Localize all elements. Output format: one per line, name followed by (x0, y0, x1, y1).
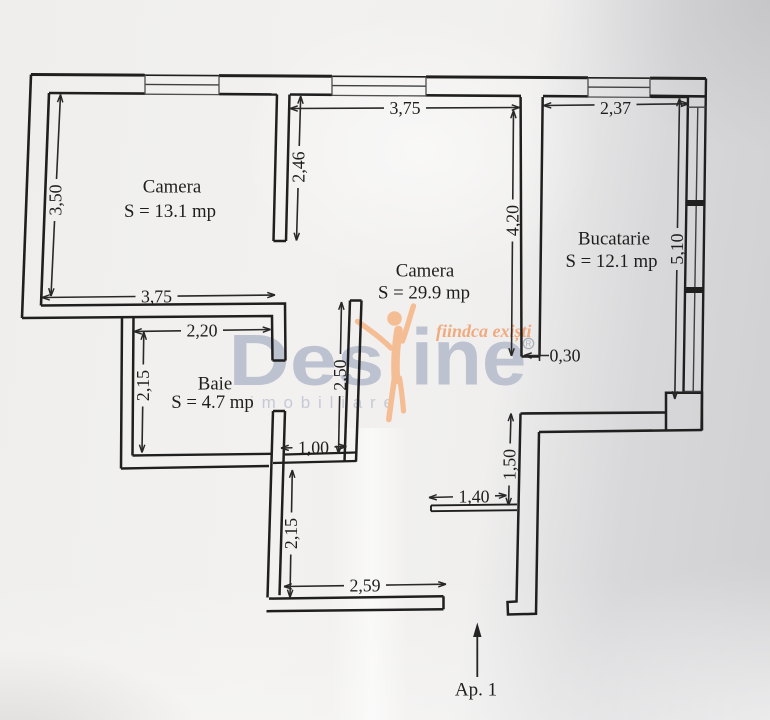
svg-text:S = 4.7 mp: S = 4.7 mp (171, 392, 254, 413)
svg-text:2,15: 2,15 (133, 370, 153, 401)
svg-text:1,50: 1,50 (500, 449, 520, 480)
svg-text:Ap. 1: Ap. 1 (455, 679, 497, 700)
svg-text:2,50: 2,50 (330, 359, 350, 390)
svg-text:1,40: 1,40 (458, 486, 489, 506)
svg-text:1,00: 1,00 (298, 437, 329, 457)
svg-text:2,37: 2,37 (600, 98, 631, 118)
svg-text:S = 29.9 mp: S = 29.9 mp (378, 282, 470, 303)
svg-text:3,75: 3,75 (389, 98, 420, 118)
svg-text:S = 13.1 mp: S = 13.1 mp (124, 201, 216, 222)
svg-text:3,75: 3,75 (141, 286, 172, 306)
svg-text:2,46: 2,46 (289, 151, 309, 182)
svg-text:2,59: 2,59 (349, 575, 380, 595)
svg-text:3,50: 3,50 (46, 184, 66, 215)
svg-text:Camera: Camera (143, 176, 202, 197)
svg-text:2,20: 2,20 (186, 321, 217, 341)
svg-text:S = 12.1 mp: S = 12.1 mp (566, 251, 658, 272)
svg-text:5,10: 5,10 (667, 233, 687, 264)
svg-text:4,20: 4,20 (503, 205, 523, 236)
svg-text:fiindca exiști: fiindca exiști (436, 321, 532, 342)
svg-text:2,15: 2,15 (281, 518, 301, 549)
svg-text:Bucatarie: Bucatarie (578, 228, 650, 249)
svg-text:imobiliare: imobiliare (250, 393, 401, 412)
svg-text:Camera: Camera (396, 260, 455, 281)
svg-text:0,30: 0,30 (549, 345, 580, 365)
svg-text:R: R (526, 340, 532, 349)
